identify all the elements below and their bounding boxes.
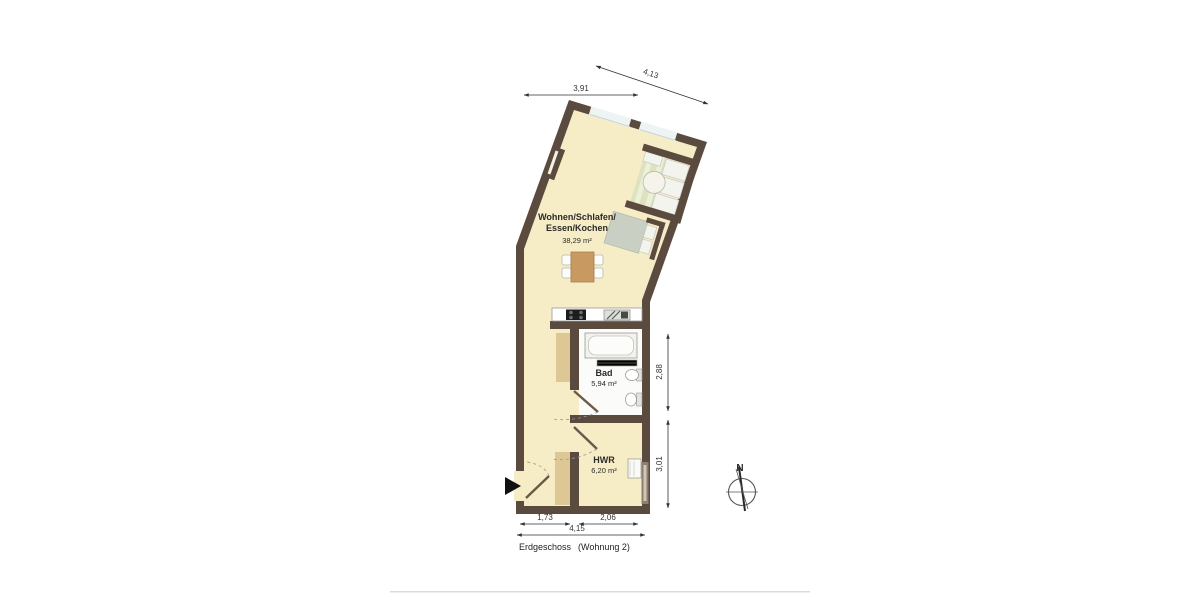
utility-area: 6,20 m² [591, 466, 617, 475]
wall-hall-utility [570, 452, 579, 506]
page-divider [390, 591, 810, 593]
north-compass: N [726, 463, 758, 511]
cabinet [555, 452, 570, 505]
bath-label: Bad [595, 368, 612, 378]
dim-bottom-hall: 1,73 [537, 513, 553, 522]
chair [562, 255, 571, 265]
unit-label: (Wohnung 2) [578, 542, 630, 552]
footer-labels: Erdgeschoss (Wohnung 2) [519, 542, 630, 552]
floorplan-drawing: Wohnen/Schlafen/ Essen/Kochen 38,29 m² B… [0, 0, 1200, 600]
dim-bottom-utility: 2,06 [600, 513, 616, 522]
dim-right-bath: 2,88 [655, 364, 664, 380]
wall-under-kitchen [550, 321, 643, 329]
stove-icon [566, 310, 586, 321]
cabinet [556, 333, 570, 382]
chair [594, 255, 603, 265]
living-label-1: Wohnen/Schlafen/ [538, 212, 616, 222]
dim-bottom-total: 4,15 [569, 524, 585, 533]
dim-top-slanted: 4,13 [642, 67, 660, 81]
floor-label: Erdgeschoss [519, 542, 572, 552]
chair [562, 268, 571, 278]
dim-right-utility: 3,01 [655, 456, 664, 472]
washbasin-icon [626, 369, 643, 381]
living-area: 38,29 m² [562, 236, 592, 245]
dining-table-icon [571, 252, 594, 282]
kitchen-counter [552, 308, 642, 321]
bathtub-icon [585, 333, 637, 358]
sink-icon [604, 310, 630, 320]
wall-hall-bath [570, 329, 579, 390]
wall-bath-utility [570, 415, 643, 423]
chair [594, 268, 603, 278]
radiator-icon [597, 360, 637, 366]
floorplan-page: Wohnen/Schlafen/ Essen/Kochen 38,29 m² B… [0, 0, 1200, 600]
utility-label: HWR [593, 455, 615, 465]
dim-top-width: 3,91 [573, 84, 589, 93]
bath-area: 5,94 m² [591, 379, 617, 388]
living-label-2: Essen/Kochen [546, 223, 608, 233]
toilet-icon [626, 393, 643, 406]
